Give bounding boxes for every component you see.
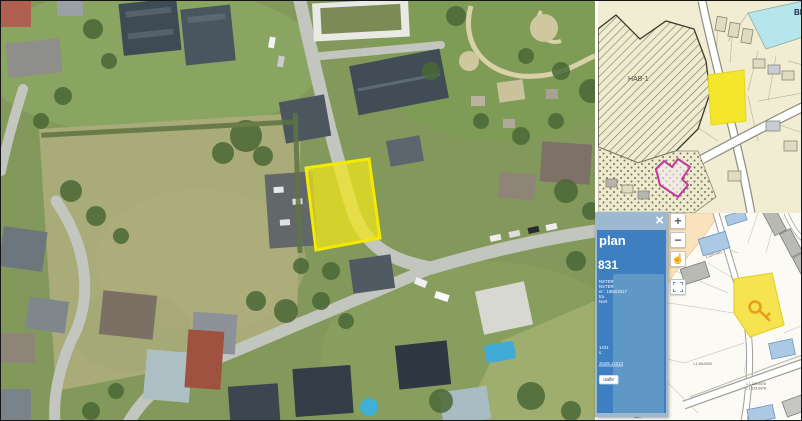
water-label: BI (794, 8, 802, 17)
aerial-photo-map[interactable] (1, 1, 595, 421)
svg-text:1.1.129.0476: 1.1.129.0476 (746, 382, 766, 386)
popup-parcel-number: 831 (597, 248, 666, 272)
highlighted-parcel-zoning[interactable] (708, 70, 746, 125)
popup-body: plan 831 NSTER NSTER er : 1952/2017 tra … (597, 230, 666, 413)
close-icon[interactable]: × (655, 214, 664, 228)
fullscreen-button[interactable] (670, 279, 686, 295)
zoning-map[interactable]: BI HAB-1 (598, 1, 802, 213)
zoom-out-button[interactable]: − (670, 232, 686, 248)
popup-action-button[interactable]: ualle (599, 375, 618, 384)
pan-hand-button[interactable]: ☝ (670, 251, 686, 267)
fullscreen-icon (673, 282, 683, 292)
info-popup: × plan 831 NSTER NSTER er : 1952/2017 tr… (595, 212, 668, 417)
zoom-in-button[interactable]: + (670, 213, 686, 229)
highlighted-parcel-aerial[interactable] (306, 159, 380, 250)
popup-header: × (595, 212, 668, 230)
popup-title: plan (597, 230, 666, 248)
geoportal-screenshot: BI HAB-1 (0, 0, 802, 421)
svg-text:1.1.HA.0003: 1.1.HA.0003 (693, 362, 712, 366)
popup-info-lines: NSTER NSTER er : 1952/2017 tra Nort (599, 280, 627, 305)
popup-info-lines-2: 1431 s : (599, 346, 609, 356)
popup-link[interactable]: 204/5.12013 (599, 362, 623, 366)
zone-label: HAB-1 (628, 76, 649, 83)
svg-text:1.1.129.0478: 1.1.129.0478 (746, 387, 766, 391)
map-controls: + − ☝ (670, 213, 687, 298)
